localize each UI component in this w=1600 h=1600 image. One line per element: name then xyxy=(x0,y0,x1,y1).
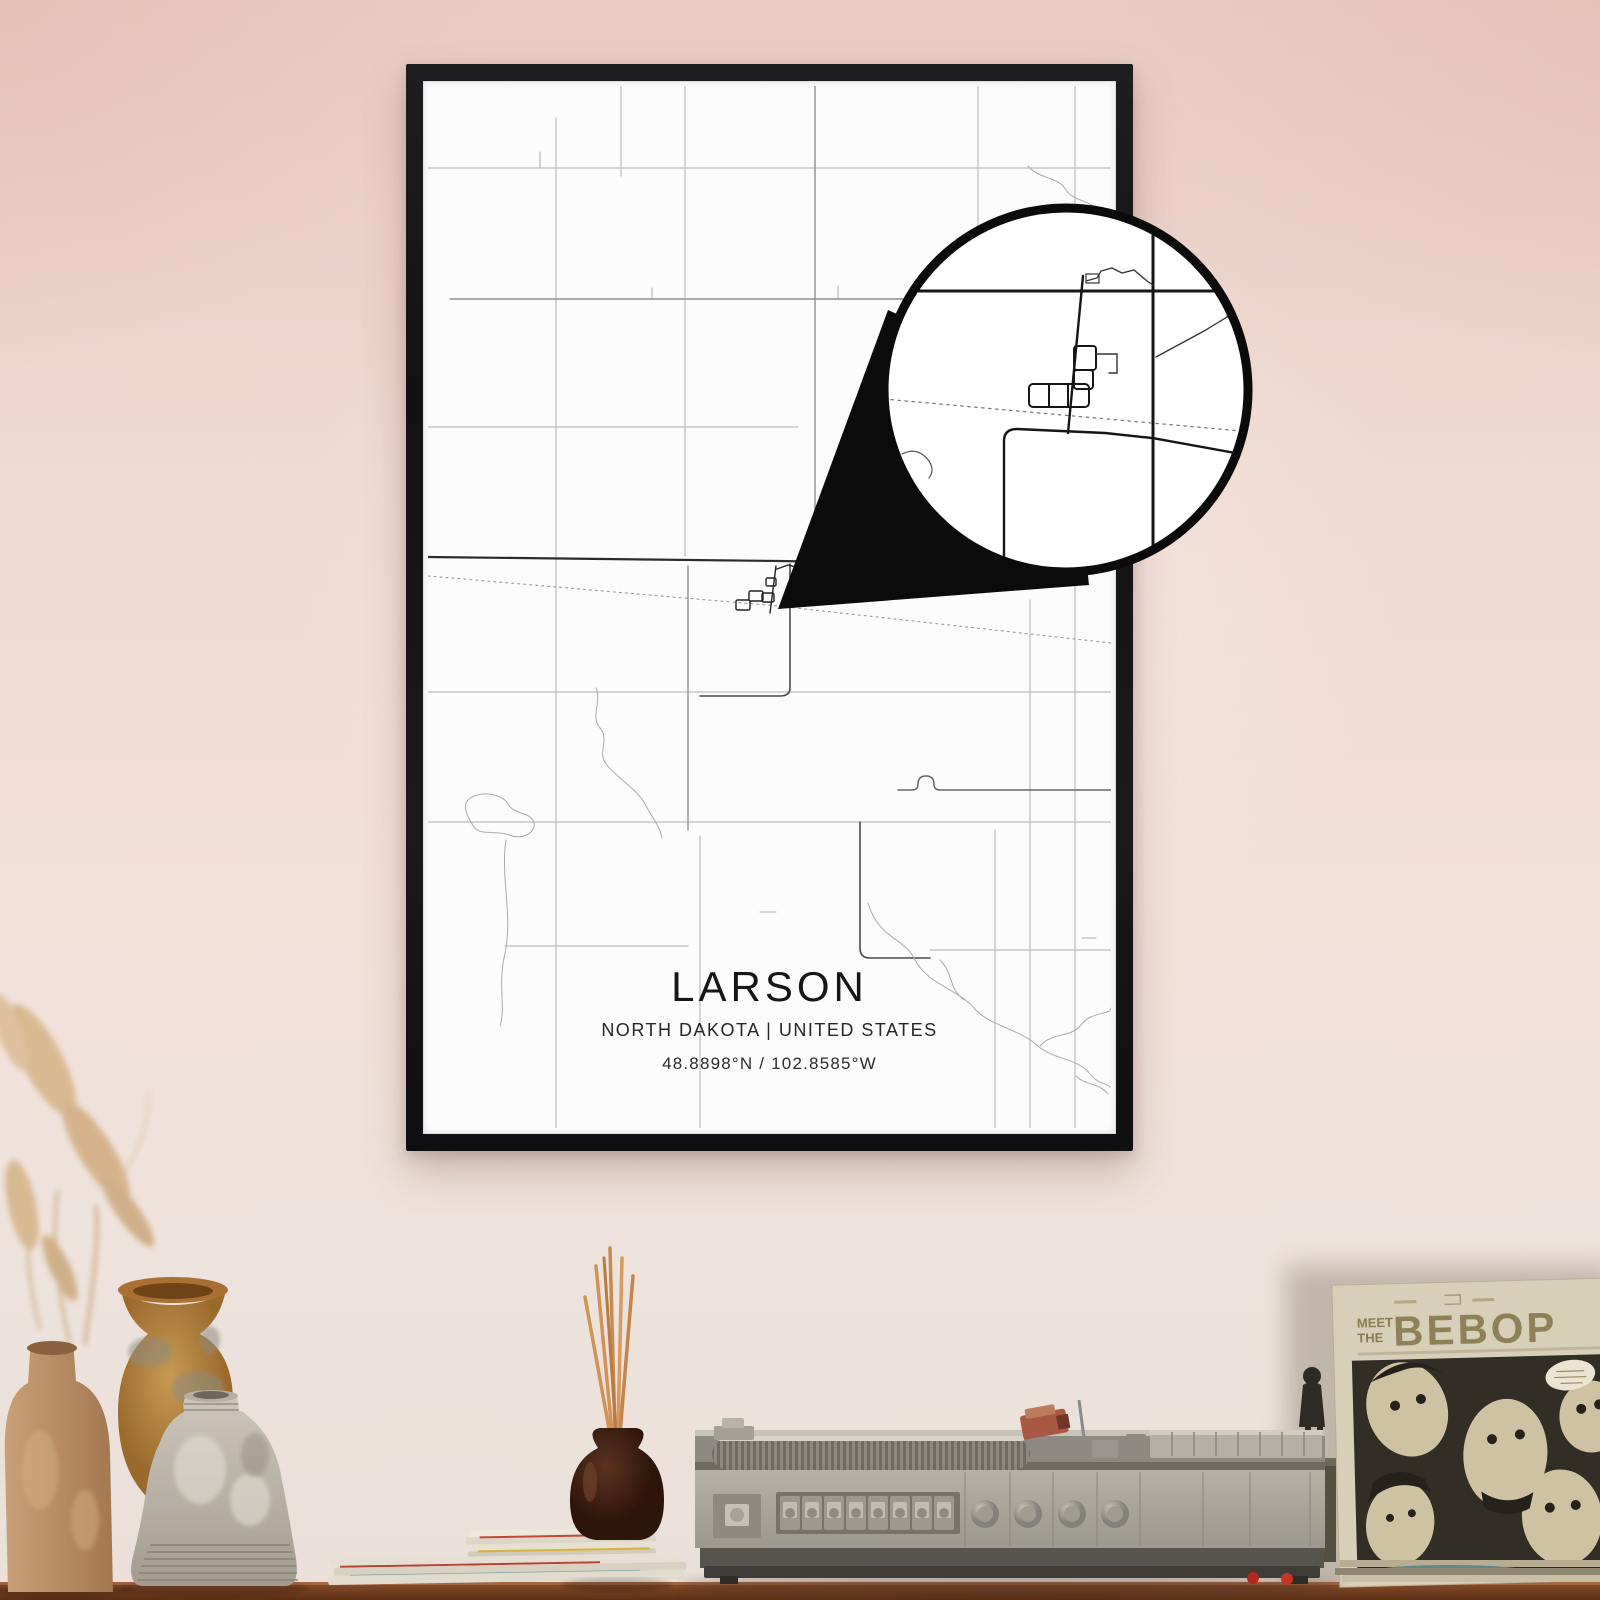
wall-shadow xyxy=(1285,1265,1600,1595)
vase-amber xyxy=(118,1277,233,1502)
record-player xyxy=(680,1400,1340,1598)
room-wall: LARSON NORTH DAKOTA | UNITED STATES 48.8… xyxy=(0,0,1600,1600)
incense-sticks xyxy=(585,1248,633,1434)
incense-jar xyxy=(570,1428,664,1540)
sleeve-meet-label: MEET xyxy=(1357,1315,1394,1331)
desk-surface xyxy=(0,1582,1600,1600)
player-buttons xyxy=(776,1492,960,1534)
poster-caption: LARSON NORTH DAKOTA | UNITED STATES 48.8… xyxy=(424,966,1115,1074)
sleeve-artwork xyxy=(1352,1345,1600,1574)
red-knob xyxy=(1281,1573,1293,1585)
power-button xyxy=(713,1494,761,1538)
player-knobs xyxy=(971,1500,1129,1528)
vase-tan xyxy=(5,1341,113,1592)
magazine-stack xyxy=(328,1527,687,1585)
stereo-arrow-icon xyxy=(1444,1295,1460,1304)
sleeve-the-label: THE xyxy=(1357,1330,1384,1346)
red-knob xyxy=(1247,1572,1259,1584)
poster-coordinates: 48.8898°N / 102.8585°W xyxy=(424,1054,1115,1074)
poster-title: LARSON xyxy=(424,966,1115,1008)
tonearm-cartridge xyxy=(1019,1400,1146,1458)
vase-group xyxy=(0,1277,309,1598)
turntable-platter xyxy=(712,1418,1030,1470)
record-label-badge xyxy=(1543,1356,1597,1394)
record-sleeve: MEET THE BEBOP xyxy=(1332,1277,1600,1587)
stacked-records xyxy=(1335,1560,1600,1582)
sleeve-title: BEBOP xyxy=(1393,1303,1559,1354)
vase-gray xyxy=(131,1390,298,1586)
figurine xyxy=(1294,1367,1336,1562)
preset-key-bar xyxy=(1150,1430,1322,1458)
incense-diffuser xyxy=(562,1248,672,1592)
poster-subtitle: NORTH DAKOTA | UNITED STATES xyxy=(424,1020,1115,1041)
